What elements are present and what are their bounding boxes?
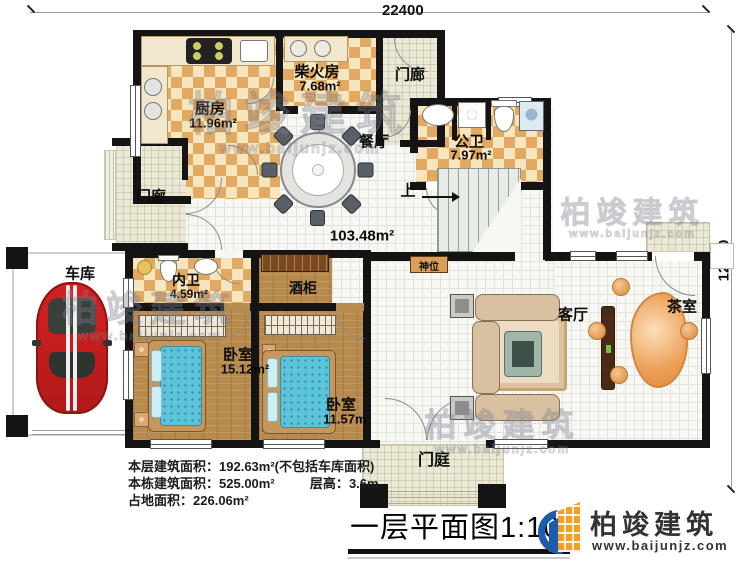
pillow [267,392,278,422]
porch-left-label: 门廊 [136,186,166,207]
garage-door-line [32,434,128,435]
chair-icon [310,114,325,130]
tv-indicator [606,345,611,353]
closet [264,315,336,335]
porch-left-steps [104,150,116,240]
car-mirror [103,340,112,346]
wall [437,30,445,146]
wine-cabinet [261,254,329,272]
public-bathroom-area: 7.97m² [450,148,491,163]
car-roof-glass [48,298,96,334]
sofa [475,294,560,321]
window [130,85,141,157]
window [263,439,325,449]
floor-plan-page: { "dimensions": { "top_width": "22400", … [0,0,750,572]
logo-tower-icon [549,518,558,552]
chair-icon [358,163,374,178]
pot-icon [144,102,162,120]
sofa [472,321,500,394]
car-windshield [49,352,95,378]
stairs-up-label: 上 [400,180,415,201]
stove-icon [186,38,232,64]
garage-door-line [32,430,128,431]
tea-stool [680,322,698,340]
mirror-icon [137,260,152,275]
nightstand [134,342,149,357]
stairs-arrow-line [422,196,452,198]
dining-room-label: 餐厅 [359,131,389,152]
stairs-arrow-head [452,192,460,202]
car-stripe [66,285,70,411]
tea-room-entry-mat [646,222,710,254]
kitchen-sink [240,40,268,62]
sofa [475,394,560,421]
washer-icon [458,102,486,128]
shrine-label: 神位 [419,262,439,273]
info-land-area: 占地面积：226.06m² [128,492,379,509]
shrine-table: 神位 [410,256,448,273]
tea-stool [610,366,628,384]
coffee-table [504,331,542,377]
coffee-table-top [512,341,534,367]
window [123,278,134,308]
side-table [450,396,474,420]
porch-top-label: 门廊 [395,64,425,85]
door-gap [215,250,243,258]
firewood-room-area: 7.68m² [299,79,340,94]
info-floor-area: 本层建筑面积：192.63m²(不包括车库面积) [128,458,379,475]
living-room-label: 客厅 [558,304,588,325]
car-stripe [73,285,77,411]
bedroom-small-area: 11.57m² [323,412,371,427]
info-block: 本层建筑面积：192.63m²(不包括车库面积) 本栋建筑面积：525.00m²… [128,458,379,509]
window [570,251,596,261]
car-mirror [32,340,41,346]
title-text: 一层平面图 [350,512,500,544]
closet [138,315,226,337]
side-table [450,294,474,318]
door-gap [224,303,250,311]
chair-icon [262,163,278,178]
burner-icon [290,40,307,57]
tea-stool [588,322,606,340]
private-bathroom-area: 4.59m² [170,287,208,301]
garage-label: 车库 [65,263,95,284]
logo-company-name: 柏竣建筑 [590,503,718,542]
entrance-court-label: 门庭 [418,446,450,470]
window [150,439,212,449]
wall [276,33,283,111]
pillow [151,350,162,382]
kitchen-area: 11.96m² [189,116,237,131]
water-heater-icon [519,101,544,131]
hall-area-label: 103.48m² [330,228,394,245]
pillow [151,386,162,418]
bedroom-large-area: 15.12m² [221,362,269,377]
tea-stool [612,278,630,296]
window [616,251,648,261]
wall [543,98,551,260]
door-gap [336,303,364,311]
tea-room-label: 茶室 [667,296,697,317]
garage-pillar [6,247,28,269]
chair-icon [310,210,325,226]
car [36,282,108,414]
garage-pillar [6,415,28,437]
door-gap [298,106,328,114]
logo-website: www.baijunjz.com [592,538,728,553]
info-building-area: 本栋建筑面积：525.00m² 层高：3.6m [128,475,379,492]
company-logo: 柏竣建筑 www.baijunjz.com [536,498,746,564]
ac-platform [710,243,734,269]
dimension-top-label: 22400 [382,2,424,19]
bed-mattress [160,346,202,426]
window [123,350,134,400]
sink-icon [422,104,454,126]
dimension-line-top [30,12,708,13]
wine-cabinet-label: 酒柜 [289,278,317,298]
window [701,318,711,374]
nightstand [134,412,149,427]
wall [182,146,188,180]
window [494,439,548,449]
dining-table-center [312,164,324,176]
wall [400,140,445,147]
wall [112,243,188,251]
pot-icon [144,78,162,96]
burner-icon [314,40,331,57]
wall [410,98,418,153]
wall [376,33,383,146]
